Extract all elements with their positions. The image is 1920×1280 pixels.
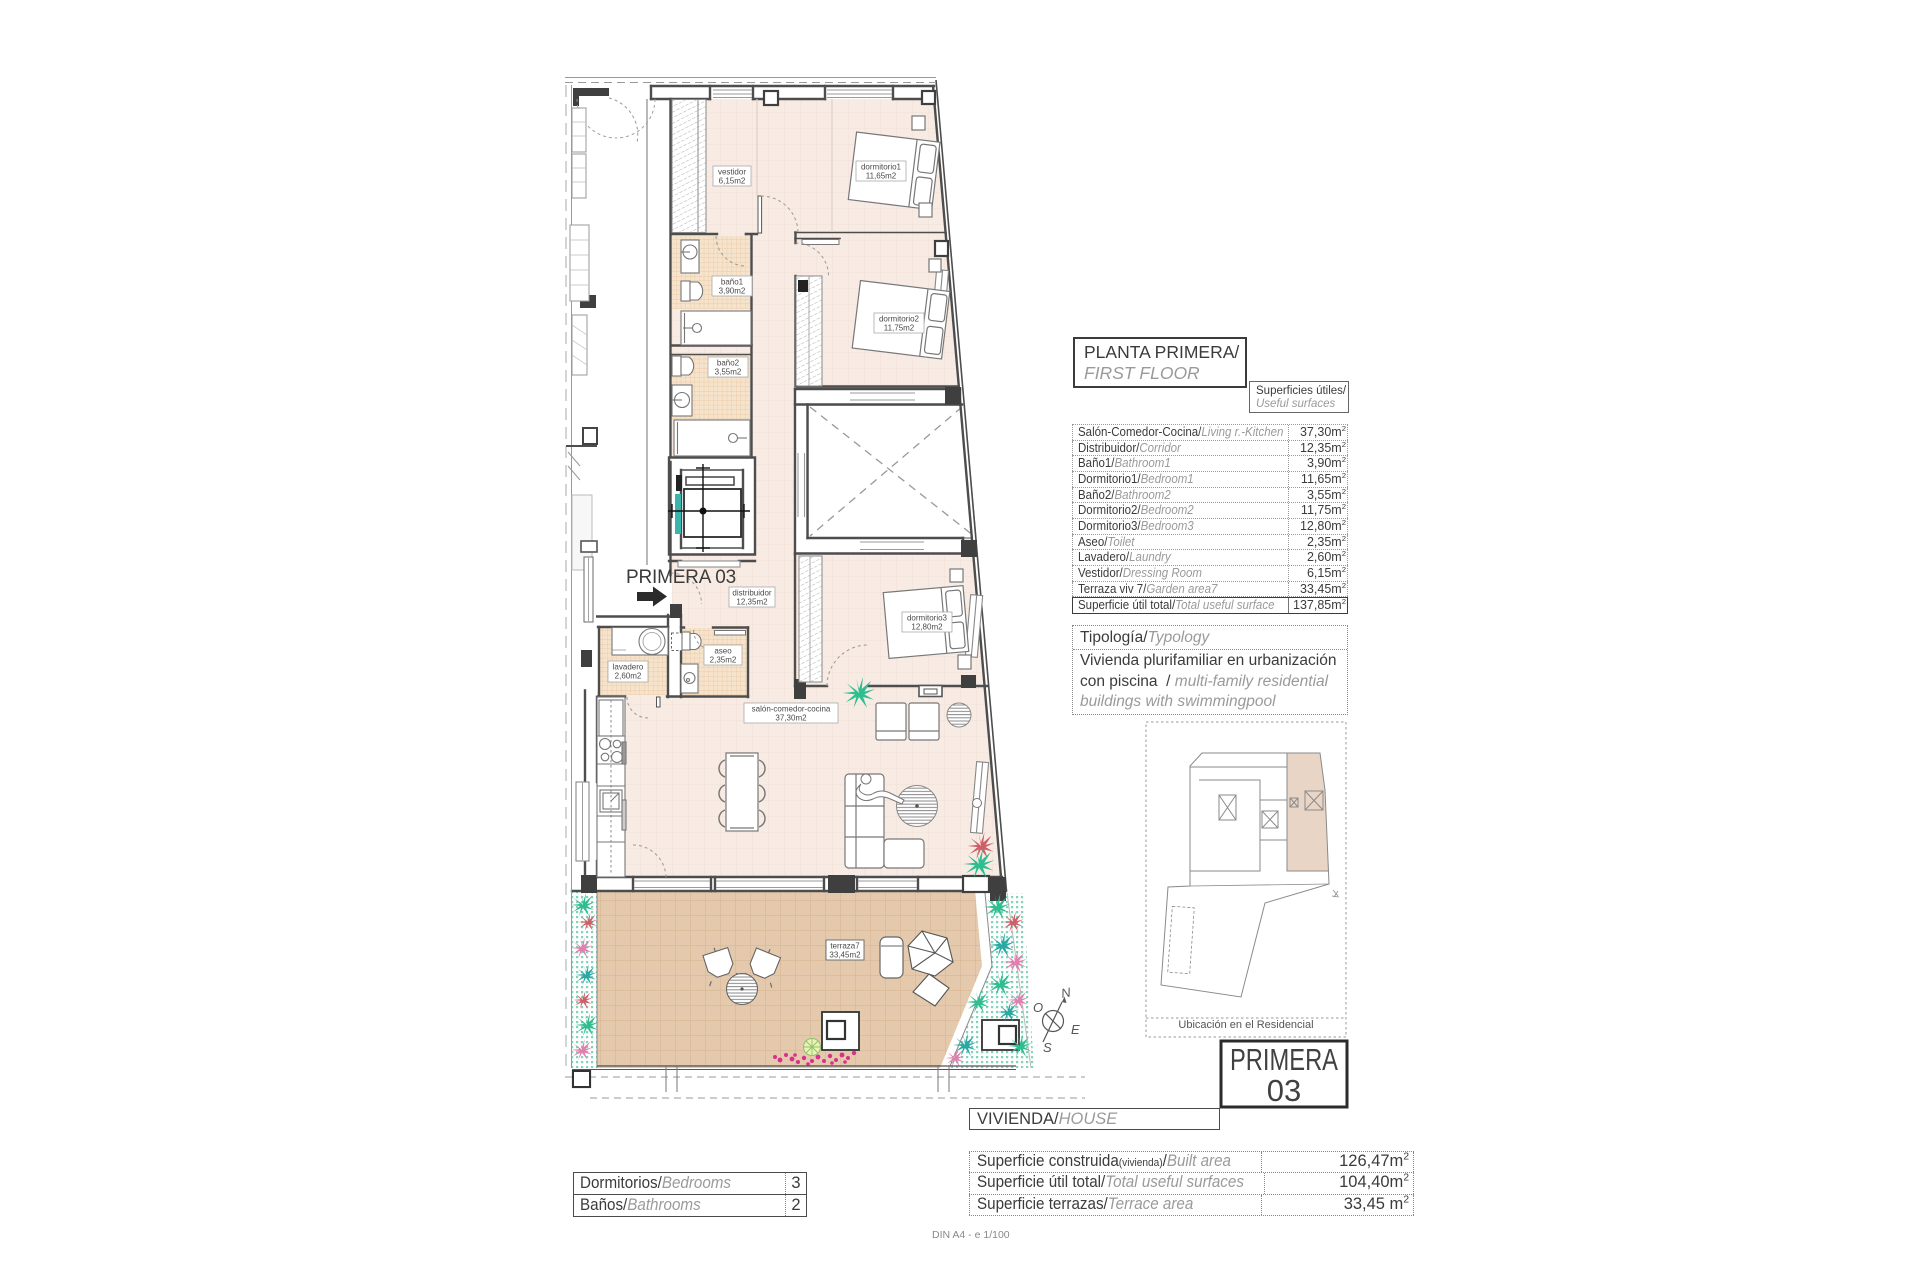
svg-text:aseo: aseo — [714, 647, 732, 656]
svg-text:E: E — [1071, 1022, 1080, 1037]
svg-text:PRIMERA: PRIMERA — [1230, 1042, 1338, 1077]
svg-text:dormitorio1: dormitorio1 — [861, 163, 902, 172]
svg-text:distribuidor: distribuidor — [732, 589, 771, 598]
svg-text:dormitorio3: dormitorio3 — [907, 614, 948, 623]
svg-text:dormitorio2: dormitorio2 — [879, 315, 920, 324]
svg-text:N: N — [1060, 984, 1072, 1001]
svg-text:3,55m2: 3,55m2 — [715, 368, 742, 377]
svg-text:lavadero: lavadero — [613, 663, 644, 672]
svg-text:S: S — [1043, 1040, 1052, 1055]
svg-text:12,80m2: 12,80m2 — [911, 623, 943, 632]
svg-text:2,35m2: 2,35m2 — [710, 656, 737, 665]
svg-text:baño1: baño1 — [721, 278, 744, 287]
svg-text:11,75m2: 11,75m2 — [884, 324, 915, 333]
svg-text:6,15m2: 6,15m2 — [719, 177, 746, 186]
svg-text:terraza7: terraza7 — [830, 942, 860, 951]
svg-text:baño2: baño2 — [717, 359, 740, 368]
svg-text:03: 03 — [1267, 1073, 1301, 1108]
svg-text:3,90m2: 3,90m2 — [719, 287, 746, 296]
svg-text:PRIMERA 03: PRIMERA 03 — [626, 567, 736, 588]
svg-text:37,30m2: 37,30m2 — [775, 714, 807, 723]
svg-text:O: O — [1033, 1000, 1043, 1015]
svg-text:vestidor: vestidor — [718, 168, 746, 177]
svg-text:33,45m2: 33,45m2 — [829, 951, 861, 960]
svg-text:11,65m2: 11,65m2 — [866, 172, 897, 181]
svg-text:2,60m2: 2,60m2 — [615, 672, 642, 681]
svg-text:12,35m2: 12,35m2 — [736, 598, 768, 607]
svg-text:salón-comedor-cocina: salón-comedor-cocina — [752, 705, 831, 714]
